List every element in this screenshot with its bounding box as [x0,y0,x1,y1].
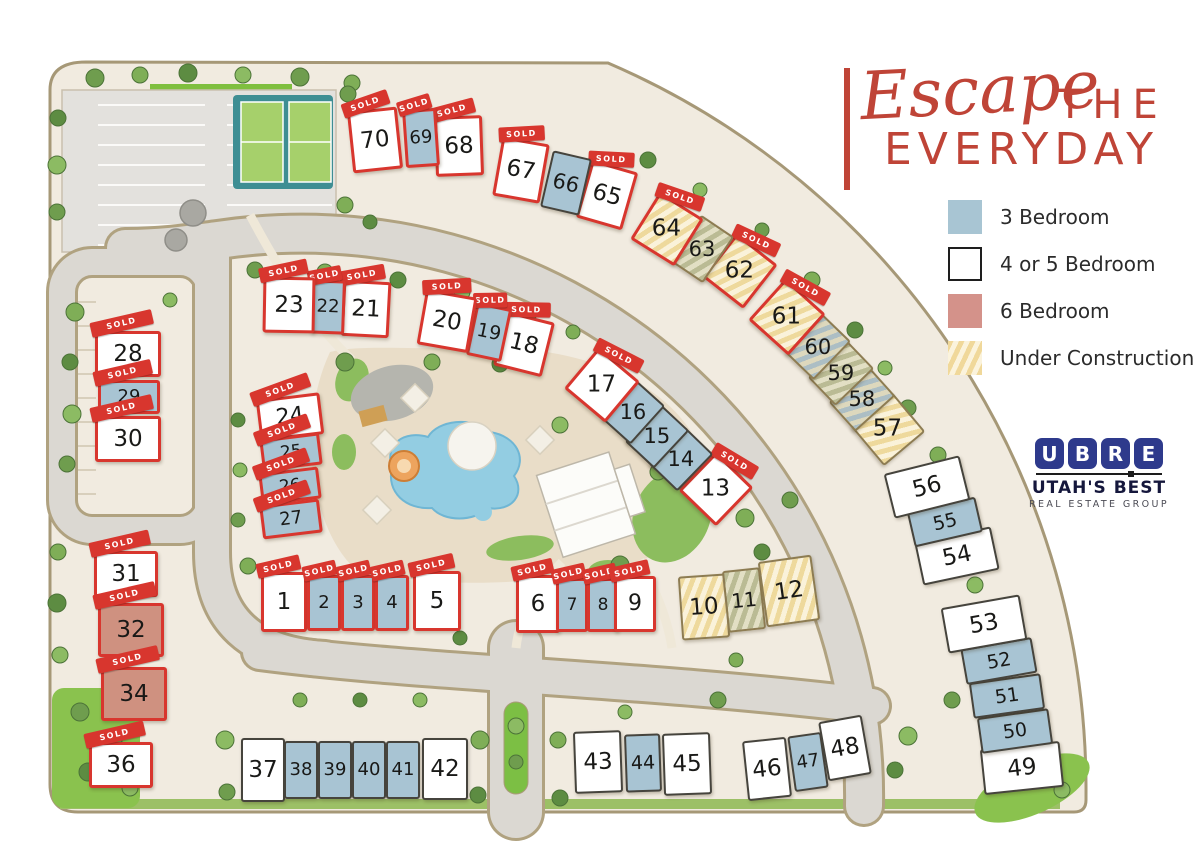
sold-ribbon: SOLD [654,182,706,212]
ubre-logo: UBRE UTAH'S BEST REAL ESTATE GROUP [1026,438,1172,510]
lot-number: 61 [772,306,801,329]
lot-number: 13 [701,478,730,501]
lot-number: 51 [994,685,1021,707]
lot-number: 57 [873,418,902,441]
lot-number: 59 [828,362,855,383]
lot-30[interactable]: SOLD30 [95,416,161,462]
lot-3[interactable]: SOLD3 [341,575,375,631]
lot-38[interactable]: 38 [284,741,318,799]
lot-number: 11 [730,589,757,612]
ubre-letter-b: B [1068,438,1097,469]
sold-ribbon: SOLD [510,558,554,582]
lot-number: 47 [795,751,820,772]
lot-number: 62 [725,260,754,283]
brand-the-word: THE [1058,82,1168,128]
lot-68[interactable]: SOLD68 [434,115,484,177]
lot-1[interactable]: SOLD1 [261,572,307,632]
lot-number: 38 [290,761,313,779]
sold-ribbon: SOLD [258,258,309,283]
lot-67[interactable]: SOLD67 [492,136,550,203]
lot-number: 17 [587,374,616,397]
lot-12[interactable]: 12 [758,555,821,628]
lot-number: 69 [409,128,433,148]
lot-number: 7 [567,597,578,614]
lot-number: 63 [689,238,716,259]
lot-number: 50 [1002,720,1029,742]
lot-number: 60 [805,336,832,357]
sold-ribbon: SOLD [588,150,634,167]
lot-number: 1 [277,591,292,614]
legend: 3 Bedroom4 or 5 Bedroom6 BedroomUnder Co… [948,200,1200,388]
legend-label: 4 or 5 Bedroom [1000,252,1155,276]
legend-label: Under Construction [1000,346,1194,370]
ubre-letter-boxes: UBRE [1026,438,1172,469]
lot-number: 66 [551,170,582,196]
sold-ribbon: SOLD [89,309,153,338]
lot-number: 42 [430,758,459,781]
sold-ribbon: SOLD [83,721,146,749]
ubre-tagline-1: UTAH'S BEST [1026,478,1172,498]
lot-number: 53 [968,610,1001,638]
lot-39[interactable]: 39 [318,741,352,799]
sold-ribbon: SOLD [396,93,433,117]
lot-number: 65 [590,180,624,210]
lot-number: 49 [1006,755,1038,781]
lot-number: 36 [106,754,135,777]
lot-number: 22 [316,298,340,317]
sold-ribbon: SOLD [369,560,406,582]
lot-number: 18 [507,329,541,358]
lot-46[interactable]: 46 [742,737,792,801]
sold-ribbon: SOLD [88,530,151,558]
lot-43[interactable]: 43 [573,730,623,794]
lot-number: 19 [475,320,503,344]
lot-number: 3 [352,594,363,612]
legend-item-uc: Under Construction [948,341,1200,375]
ubre-letter-r: R [1101,438,1130,469]
lot-number: 44 [631,753,656,773]
sold-ribbon: SOLD [473,292,507,308]
lot-number: 14 [668,448,695,469]
lot-number: 55 [931,510,959,534]
lot-44[interactable]: 44 [624,733,662,792]
brand-everyday-word: EVERYDAY [884,124,1159,175]
sold-ribbon: SOLD [593,337,646,374]
lot-number: 43 [583,750,613,774]
lot-7[interactable]: SOLD7 [556,578,588,632]
lot-number: 31 [111,563,140,586]
lot-36[interactable]: SOLD36 [89,742,153,788]
lot-number: 9 [628,593,642,615]
lot-number: 23 [274,293,304,317]
lot-number: 5 [430,590,445,613]
lot-number: 4 [386,594,397,612]
lot-69[interactable]: SOLD69 [402,108,440,168]
lot-37[interactable]: 37 [241,738,285,802]
lot-number: 64 [652,218,681,241]
lot-70[interactable]: SOLD70 [347,107,403,174]
sold-ribbon: SOLD [422,278,472,296]
lot-5[interactable]: SOLD5 [413,571,461,631]
sold-ribbon: SOLD [301,560,338,582]
lot-number: 37 [248,759,277,782]
lot-number: 68 [444,134,474,158]
lot-9[interactable]: SOLD9 [614,576,656,632]
lot-number: 32 [116,619,145,642]
brand-accent-bar [844,68,850,190]
lot-23[interactable]: SOLD23 [263,277,316,334]
sold-ribbon: SOLD [340,89,390,119]
lot-number: 2 [318,594,329,612]
lot-number: 30 [113,428,142,451]
sold-ribbon: SOLD [335,560,372,582]
lot-34[interactable]: SOLD34 [101,667,167,721]
ubre-divider [1036,473,1162,475]
lot-number: 41 [392,761,415,779]
legend-swatch-uc [948,341,982,375]
lot-40[interactable]: 40 [352,741,386,799]
ubre-tagline-2: REAL ESTATE GROUP [1026,499,1172,510]
lot-number: 10 [689,595,720,620]
sold-ribbon: SOLD [498,125,544,142]
lot-number: 16 [620,401,647,422]
lot-21[interactable]: SOLD21 [341,280,392,338]
lot-41[interactable]: 41 [386,741,420,799]
sold-ribbon: SOLD [255,554,301,578]
legend-label: 6 Bedroom [1000,299,1110,323]
lot-27[interactable]: SOLD27 [259,498,323,539]
lot-number: 27 [279,509,304,530]
site-map-stage: SOLD1SOLD2SOLD3SOLD4SOLD5SOLD6SOLD7SOLD8… [0,0,1200,857]
lot-number: 12 [773,578,805,605]
sold-ribbon: SOLD [710,442,760,480]
lot-20[interactable]: SOLD20 [417,289,478,353]
lot-number: 52 [985,650,1012,673]
lot-number: 6 [531,593,546,616]
lot-number: 34 [119,683,148,706]
legend-swatch-3 [948,200,982,234]
lot-4[interactable]: SOLD4 [375,575,409,631]
ubre-letter-u: U [1035,438,1064,469]
legend-item-6: 6 Bedroom [948,294,1200,328]
lot-22[interactable]: SOLD22 [310,279,346,334]
ubre-letter-e: E [1134,438,1163,469]
lot-number: 58 [849,388,876,409]
legend-item-45: 4 or 5 Bedroom [948,247,1200,281]
lot-number: 56 [910,472,944,501]
lot-number: 67 [505,156,538,184]
legend-swatch-45 [948,247,982,281]
legend-label: 3 Bedroom [1000,205,1110,229]
lot-number: 39 [324,761,347,779]
sold-ribbon: SOLD [731,223,782,257]
lot-number: 48 [829,734,862,762]
lot-number: 20 [431,307,464,335]
lot-number: 21 [351,297,381,322]
lot-number: 15 [644,425,671,446]
sold-ribbon: SOLD [407,553,455,578]
lot-45[interactable]: 45 [662,732,712,796]
legend-swatch-6 [948,294,982,328]
lot-number: 70 [359,127,391,153]
lot-48[interactable]: 48 [818,715,872,782]
lot-2[interactable]: SOLD2 [307,575,341,631]
lot-number: 40 [358,761,381,779]
legend-item-3: 3 Bedroom [948,200,1200,234]
lot-42[interactable]: 42 [422,738,468,800]
lot-number: 45 [672,752,702,776]
lot-number: 46 [751,756,783,782]
sold-ribbon: SOLD [779,269,831,307]
lot-number: 54 [940,542,973,571]
lot-number: 8 [598,597,609,614]
